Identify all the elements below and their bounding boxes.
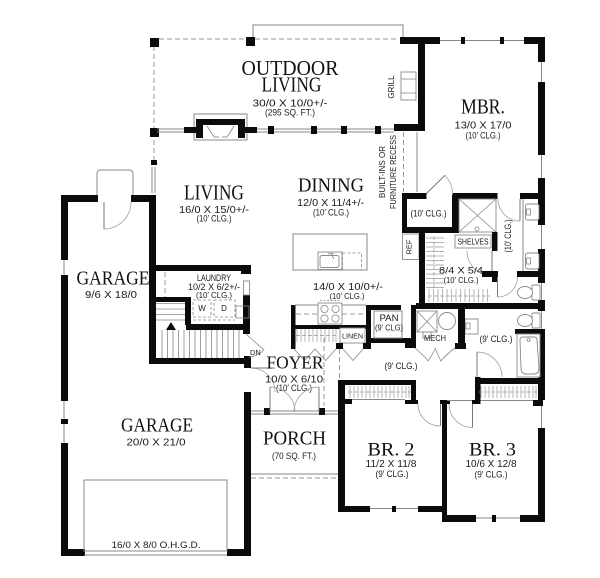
svg-text:BR. 2: BR. 2 <box>368 440 415 461</box>
svg-text:9/6 X 18/0: 9/6 X 18/0 <box>85 290 137 301</box>
svg-text:D: D <box>221 304 227 313</box>
svg-text:(70 SQ. FT.): (70 SQ. FT.) <box>272 451 316 461</box>
svg-text:GARAGE: GARAGE <box>121 415 193 437</box>
svg-text:(10′ CLG.): (10′ CLG.) <box>276 383 312 393</box>
svg-text:(9′ CLG.): (9′ CLG.) <box>475 470 508 480</box>
svg-text:GARAGE: GARAGE <box>77 268 150 290</box>
svg-text:(10′ CLG.): (10′ CLG.) <box>330 291 365 301</box>
svg-text:(10′ CLG.): (10′ CLG.) <box>411 209 447 219</box>
svg-text:REF: REF <box>405 239 414 254</box>
svg-text:SHELVES: SHELVES <box>458 237 489 247</box>
svg-text:MECH: MECH <box>424 333 446 343</box>
svg-text:FURNITURE RECESS: FURNITURE RECESS <box>388 135 398 209</box>
svg-text:(10′ CLG.): (10′ CLG.) <box>503 220 513 253</box>
svg-text:(10′ CLG.): (10′ CLG.) <box>444 275 479 285</box>
svg-text:(10′ CLG.): (10′ CLG.) <box>313 208 349 218</box>
svg-text:(9′ CLG.): (9′ CLG.) <box>385 361 418 371</box>
svg-text:(10′ CLG.): (10′ CLG.) <box>196 290 232 300</box>
svg-text:(10′ CLG.): (10′ CLG.) <box>466 131 501 141</box>
svg-text:BUILT-INS OR: BUILT-INS OR <box>377 146 387 198</box>
svg-text:MBR.: MBR. <box>461 95 505 119</box>
svg-text:8/4 X 5/4: 8/4 X 5/4 <box>439 266 483 276</box>
svg-text:DN: DN <box>250 348 261 357</box>
svg-text:20/0 X 21/0: 20/0 X 21/0 <box>127 438 186 449</box>
svg-text:DINING: DINING <box>298 175 364 197</box>
svg-text:LIVING: LIVING <box>262 73 322 97</box>
svg-text:GRILL: GRILL <box>387 75 396 99</box>
svg-text:10/6 X 12/8: 10/6 X 12/8 <box>466 459 517 470</box>
svg-text:FOYER: FOYER <box>267 353 324 373</box>
svg-text:PAN: PAN <box>380 313 399 323</box>
svg-text:LINEN: LINEN <box>342 332 363 341</box>
svg-text:(9′ CLG): (9′ CLG) <box>375 323 403 333</box>
svg-text:(9′ CLG.): (9′ CLG.) <box>376 469 409 479</box>
svg-text:W: W <box>198 304 206 313</box>
svg-text:(9′ CLG.): (9′ CLG.) <box>480 334 513 344</box>
svg-text:(10′ CLG.): (10′ CLG.) <box>197 214 232 224</box>
svg-text:(295 SQ. FT.): (295 SQ. FT.) <box>265 107 315 118</box>
svg-text:BR. 3: BR. 3 <box>469 440 516 461</box>
svg-text:16/0 X 8/0 O.H.G.D.: 16/0 X 8/0 O.H.G.D. <box>112 540 201 551</box>
svg-text:LIVING: LIVING <box>184 181 244 205</box>
svg-text:PORCH: PORCH <box>263 428 326 450</box>
